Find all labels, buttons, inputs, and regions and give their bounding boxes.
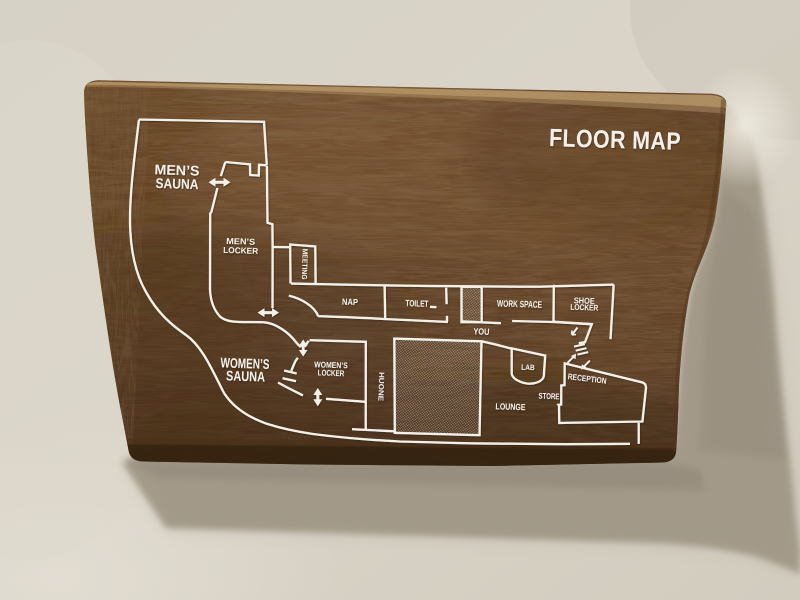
svg-text:STORE: STORE xyxy=(538,391,560,402)
svg-text:SAUNA: SAUNA xyxy=(155,175,198,192)
svg-text:SAUNA: SAUNA xyxy=(226,367,265,384)
svg-text:LOCKER: LOCKER xyxy=(223,245,259,256)
svg-text:LOUNGE: LOUNGE xyxy=(495,401,525,412)
svg-text:FLOOR MAP: FLOOR MAP xyxy=(549,124,682,156)
svg-text:HUONE: HUONE xyxy=(376,372,386,401)
svg-text:NAP: NAP xyxy=(342,297,358,307)
svg-text:WORK SPACE: WORK SPACE xyxy=(497,299,542,311)
svg-text:TOILET: TOILET xyxy=(405,298,429,309)
svg-text:LOCKER: LOCKER xyxy=(570,302,598,313)
svg-text:LOCKER: LOCKER xyxy=(318,367,345,378)
svg-text:MEETING: MEETING xyxy=(300,248,310,280)
svg-text:YOU: YOU xyxy=(473,326,489,336)
svg-text:LAB: LAB xyxy=(521,363,535,372)
